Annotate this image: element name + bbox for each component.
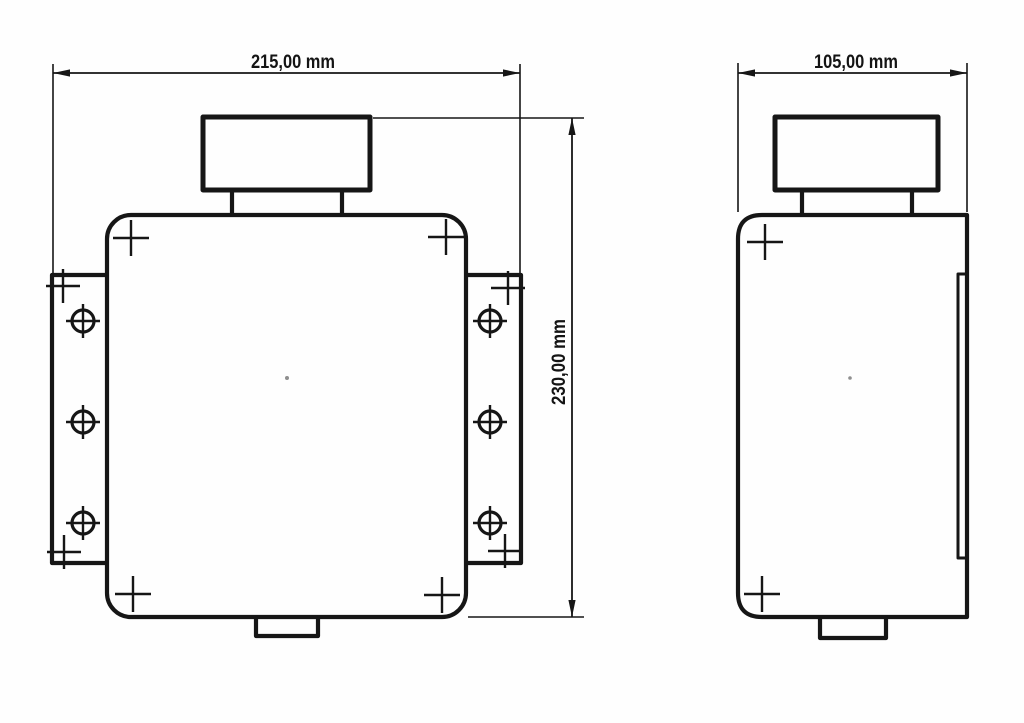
mounting-hole xyxy=(66,304,100,338)
side-connector-block xyxy=(775,117,938,190)
arrowhead-left xyxy=(738,69,755,76)
side-view: 105,00 mm xyxy=(738,52,967,638)
center-point xyxy=(848,376,852,380)
arrowhead-left xyxy=(53,69,70,76)
front-right-mounting-flange xyxy=(466,275,521,563)
center-point xyxy=(285,376,289,380)
mounting-hole xyxy=(66,506,100,540)
front-left-mounting-flange xyxy=(52,275,107,563)
mounting-hole xyxy=(473,304,507,338)
mounting-hole xyxy=(66,405,100,439)
side-bottom-tab xyxy=(820,617,886,638)
dimension-label-front-width: 215,00 mm xyxy=(251,52,335,73)
mounting-hole xyxy=(473,405,507,439)
dimension-label-front-height: 230,00 mm xyxy=(549,319,570,405)
side-connector-neck xyxy=(802,190,912,215)
technical-drawing: 215,00 mm 230,00 mm xyxy=(0,0,1024,723)
arrowhead-right xyxy=(950,69,967,76)
front-connector-block xyxy=(203,117,370,190)
front-connector-neck xyxy=(232,190,342,215)
arrowhead-bottom xyxy=(568,600,575,617)
arrowhead-right xyxy=(503,69,520,76)
mounting-hole xyxy=(473,506,507,540)
front-view: 215,00 mm 230,00 mm xyxy=(46,52,584,636)
dimension-label-side-width: 105,00 mm xyxy=(814,52,898,73)
side-body xyxy=(738,215,967,617)
arrowhead-top xyxy=(568,118,575,135)
front-body xyxy=(107,215,466,617)
front-bottom-tab xyxy=(256,617,318,636)
